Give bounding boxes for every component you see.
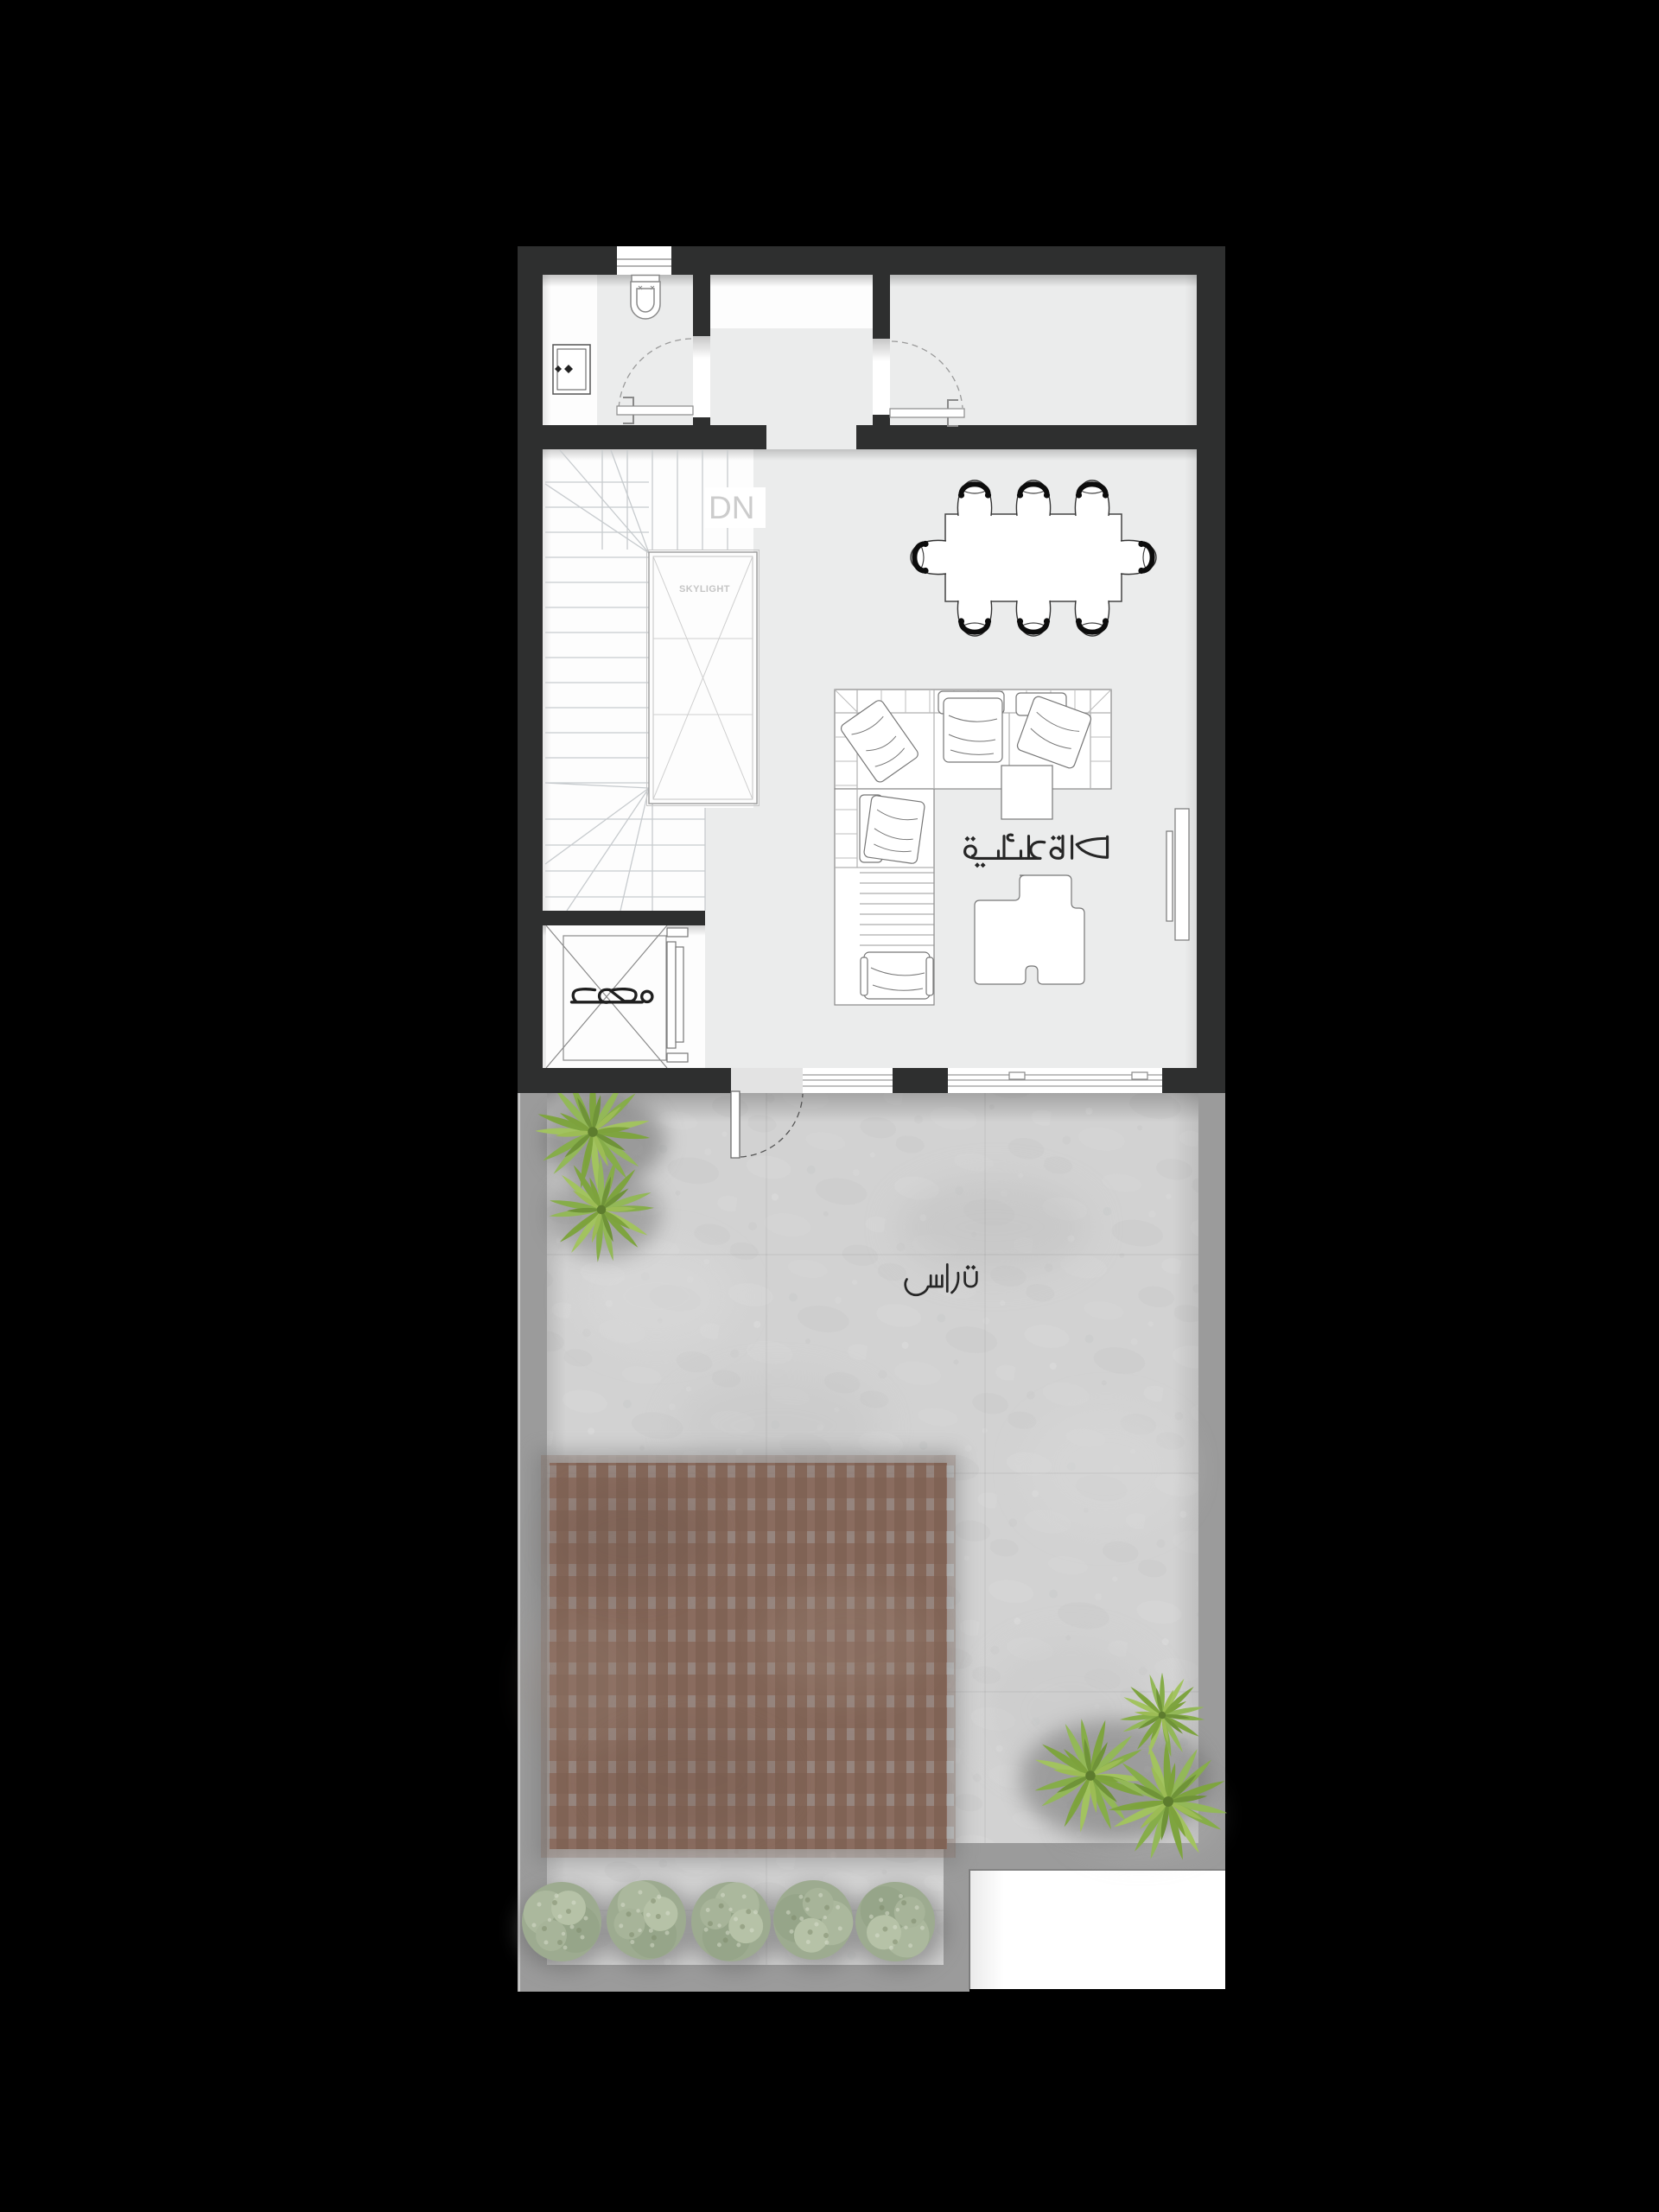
- svg-text:SKYLIGHT: SKYLIGHT: [679, 584, 730, 594]
- svg-text:DN: DN: [709, 490, 754, 525]
